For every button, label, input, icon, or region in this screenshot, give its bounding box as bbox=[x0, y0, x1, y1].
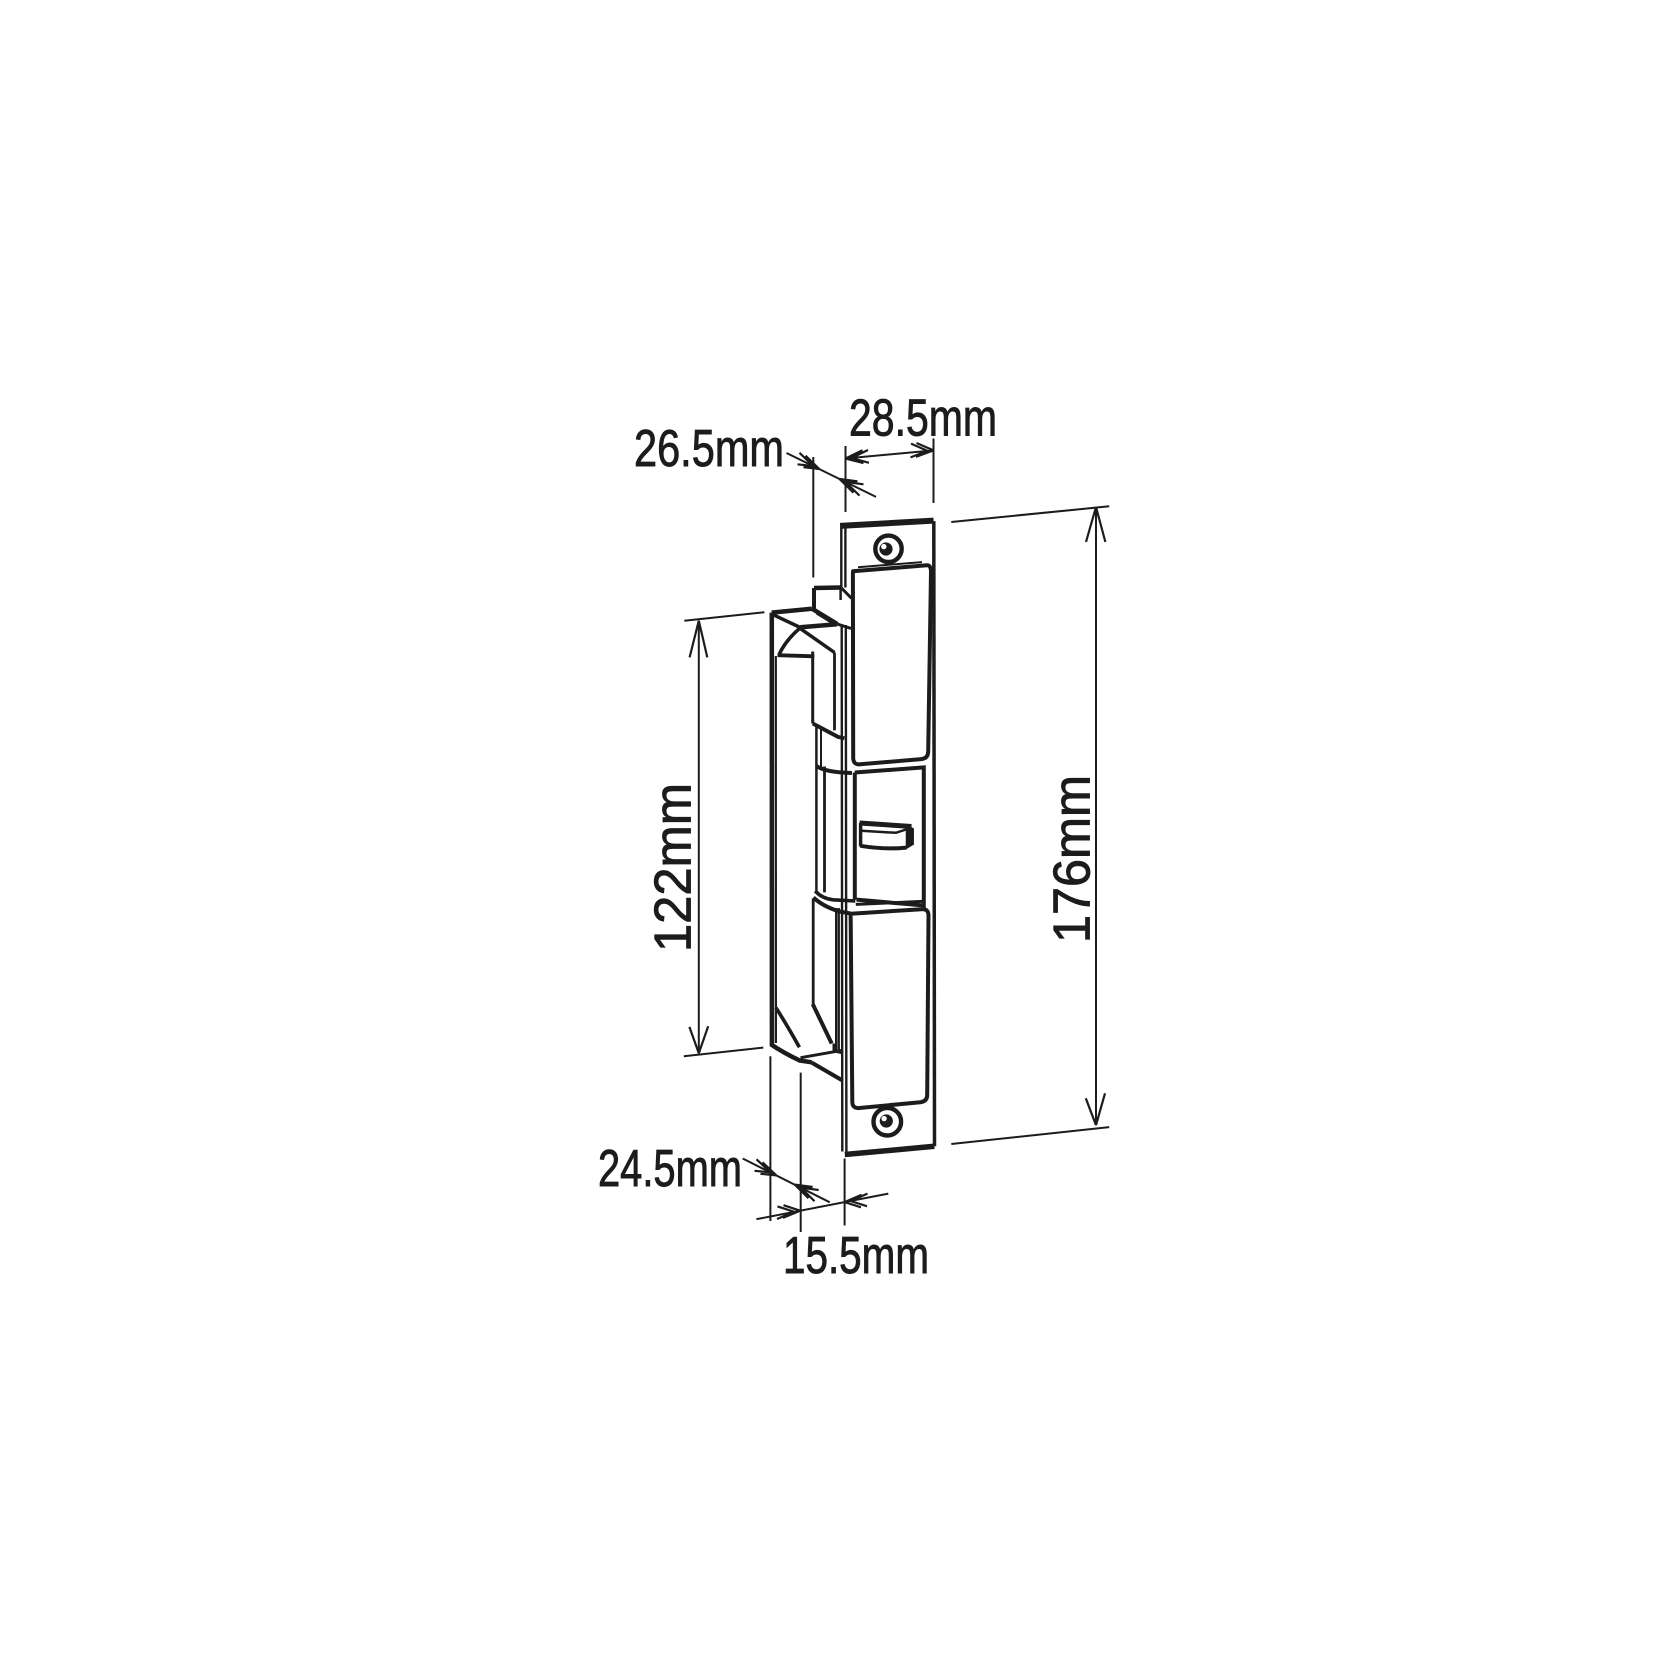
svg-text:176mm: 176mm bbox=[1044, 775, 1102, 943]
svg-text:15.5mm: 15.5mm bbox=[783, 1227, 929, 1285]
svg-text:28.5mm: 28.5mm bbox=[849, 390, 997, 448]
svg-text:26.5mm: 26.5mm bbox=[634, 420, 784, 478]
svg-text:24.5mm: 24.5mm bbox=[598, 1140, 742, 1198]
svg-text:122mm: 122mm bbox=[645, 783, 703, 952]
